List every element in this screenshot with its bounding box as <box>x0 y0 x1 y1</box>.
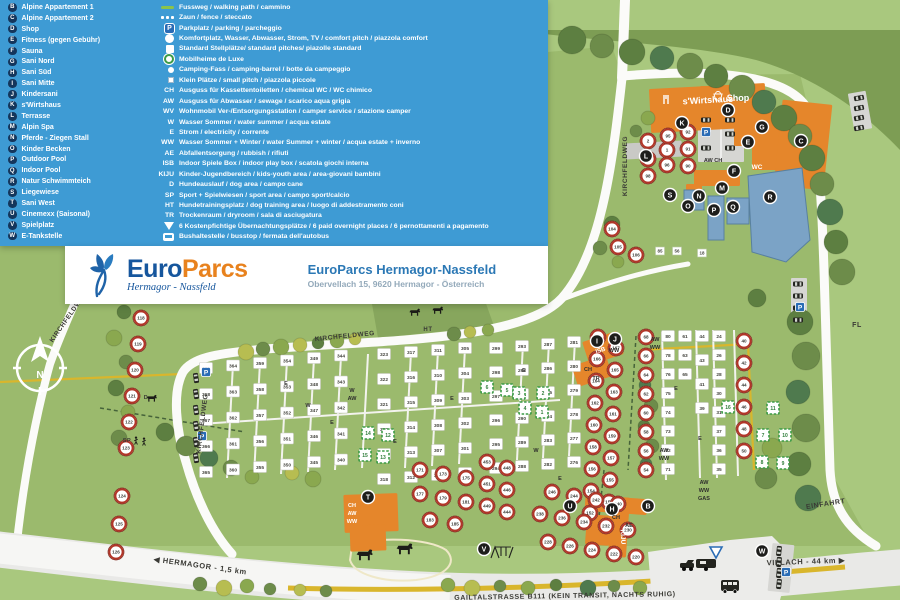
tree <box>156 423 174 441</box>
svg-text:299: 299 <box>492 346 500 352</box>
utility-label: W <box>305 403 311 409</box>
facility-label: Alpin Spa <box>22 124 54 131</box>
svg-text:122: 122 <box>125 420 133 425</box>
svg-text:359: 359 <box>256 361 264 367</box>
legend-symbol-row: KIJUKinder-Jugendbereich / kids-youth ar… <box>152 169 548 179</box>
svg-text:L: L <box>644 153 649 160</box>
legend-facility-row: QIndoor Pool <box>4 165 152 176</box>
svg-text:50: 50 <box>741 449 747 454</box>
circle-sm-icon <box>168 67 174 73</box>
facility-label: Liegewiese <box>22 189 59 196</box>
facility-label: Sani Süd <box>22 69 52 76</box>
facility-letter-badge: P <box>8 156 17 165</box>
svg-text:124: 124 <box>118 494 126 499</box>
legend-symbol-row: Komfortplatz, Wasser, Abwasser, Strom, T… <box>152 33 548 43</box>
tree <box>558 26 586 54</box>
fence-icon <box>161 16 174 19</box>
svg-text:159: 159 <box>608 434 616 439</box>
svg-text:S: S <box>668 192 673 199</box>
facility-label: Terrasse <box>22 113 51 120</box>
facility-letter-badge: M <box>8 123 17 132</box>
svg-text:280: 280 <box>570 364 578 370</box>
footpath-icon <box>161 6 174 9</box>
svg-text:92: 92 <box>685 130 691 135</box>
svg-text:5: 5 <box>506 388 509 394</box>
parked-car-icon <box>776 579 782 589</box>
tree <box>612 256 624 268</box>
svg-text:236: 236 <box>558 516 566 521</box>
svg-text:185: 185 <box>451 522 459 527</box>
utility-label: E <box>450 396 454 402</box>
svg-text:N: N <box>696 193 701 200</box>
svg-text:242: 242 <box>592 498 600 503</box>
svg-text:451: 451 <box>483 482 491 487</box>
building-sani-west <box>350 524 387 551</box>
tree <box>619 39 645 65</box>
tree <box>117 305 131 319</box>
svg-text:281: 281 <box>570 340 578 346</box>
tree <box>176 436 196 456</box>
legend-symbol-row: Fussweg / walking path / cammino <box>152 2 548 12</box>
svg-text:90: 90 <box>685 164 691 169</box>
legend-facility-row: OKinder Becken <box>4 144 152 155</box>
svg-text:126: 126 <box>112 550 120 555</box>
svg-text:76: 76 <box>665 372 671 378</box>
legend-facility-row: WE-Tankstelle <box>4 231 152 242</box>
site-address: Obervellach 15, 9620 Hermagor - Österrei… <box>308 279 497 289</box>
legend-facility-row: GSani Nord <box>4 56 152 67</box>
tree <box>786 380 810 404</box>
facility-letter-badge: H <box>8 69 17 78</box>
area-label: TR <box>592 376 599 382</box>
svg-text:448: 448 <box>503 466 511 471</box>
svg-text:30: 30 <box>716 391 722 397</box>
tree <box>792 342 820 370</box>
outdoor-pool <box>708 196 724 240</box>
road-label: KIRCHFELDWEG <box>622 136 629 196</box>
facility-letter-badge: B <box>8 3 17 12</box>
svg-text:K: K <box>679 120 684 127</box>
svg-text:290: 290 <box>518 416 526 422</box>
parked-car-icon <box>793 294 803 299</box>
svg-text:354: 354 <box>283 358 291 364</box>
symbol-label: Strom / electricity / corrente <box>179 129 269 136</box>
facility-letter-badge: K <box>8 101 17 110</box>
svg-text:44: 44 <box>741 383 747 388</box>
svg-text:308: 308 <box>434 423 442 429</box>
symbol-abbr: HT <box>152 202 174 209</box>
symbol-label: Parkplatz / parking / parcheggio <box>179 25 282 32</box>
svg-text:355: 355 <box>256 465 264 471</box>
facility-label: Natur Schwimmteich <box>22 178 91 185</box>
legend-symbol-row: Klein Plätze / small pitch / piazzola pi… <box>152 75 548 85</box>
svg-text:322: 322 <box>380 377 388 383</box>
legend-facility-row: Ks'Wirtshaus <box>4 100 152 111</box>
svg-text:360: 360 <box>229 467 237 473</box>
area-label: AE <box>625 523 633 529</box>
svg-text:64: 64 <box>643 373 649 378</box>
parked-car-icon <box>793 282 803 287</box>
tree <box>447 327 461 341</box>
symbol-label: Ausguss für Kassettentoiletten / chemica… <box>179 87 372 94</box>
building-label: WC <box>752 164 763 171</box>
legend-facility-row: JKindersani <box>4 89 152 100</box>
svg-text:315: 315 <box>407 400 415 406</box>
svg-text:B: B <box>645 503 650 510</box>
facility-letter-badge: L <box>8 112 17 121</box>
svg-text:16: 16 <box>725 405 731 411</box>
svg-text:342: 342 <box>337 405 345 411</box>
svg-text:283: 283 <box>544 438 552 444</box>
symbol-label: Wasser Sommer + Winter / water Summer + … <box>179 139 420 146</box>
svg-text:282: 282 <box>544 462 552 468</box>
svg-text:11: 11 <box>770 406 776 412</box>
tree <box>482 324 494 336</box>
facility-letter-badge: Q <box>8 167 17 176</box>
brand-subtitle: Hermagor - Nassfeld <box>127 283 248 294</box>
utility-label: AW <box>660 448 670 454</box>
legend-facility-row: HSani Süd <box>4 67 152 78</box>
facility-label: Indoor Pool <box>22 167 61 174</box>
legend-symbol-row: ISBIndoor Spiele Box / indoor play box /… <box>152 159 548 169</box>
svg-text:73: 73 <box>665 429 671 435</box>
symbol-label: Sport + Spielwiesen / sport area / campo… <box>179 192 350 199</box>
legend-symbol-row: PParkplatz / parking / parcheggio <box>152 23 548 33</box>
svg-text:317: 317 <box>407 350 415 356</box>
svg-text:2: 2 <box>647 139 650 144</box>
facility-letter-badge: O <box>8 145 17 154</box>
svg-text:75: 75 <box>665 391 671 397</box>
svg-text:106: 106 <box>632 253 640 258</box>
svg-text:311: 311 <box>434 348 442 354</box>
tree <box>824 230 848 254</box>
legend-facility-row: BAlpine Appartement 1 <box>4 2 152 13</box>
svg-text:345: 345 <box>310 460 318 466</box>
svg-text:39: 39 <box>699 406 705 412</box>
tree <box>264 583 276 595</box>
facility-label: Fitness (gegen Gebühr) <box>22 37 101 44</box>
svg-text:N: N <box>36 370 43 381</box>
symbol-label: Bushaltestelle / busstop / fermata dell'… <box>179 233 329 240</box>
svg-text:228: 228 <box>544 540 552 545</box>
logo-bar: EuroParcs Hermagor - Nassfeld EuroParcs … <box>65 246 548 304</box>
svg-text:63: 63 <box>682 353 688 359</box>
tree <box>550 579 562 591</box>
symbol-abbr: SP <box>152 192 174 199</box>
svg-text:293: 293 <box>518 344 526 350</box>
symbol-label: Trockenraum / dryroom / sala di asciugat… <box>179 212 322 219</box>
tree <box>752 90 776 114</box>
svg-text:14: 14 <box>365 431 371 437</box>
symbol-abbr: CH <box>152 87 174 94</box>
facility-label: Kinder Becken <box>22 146 71 153</box>
building-label: CH <box>348 503 356 509</box>
legend-symbol-row: DHundeauslauf / dog area / campo cane <box>152 179 548 189</box>
svg-text:V: V <box>482 546 487 553</box>
svg-text:356: 356 <box>256 439 264 445</box>
svg-text:42: 42 <box>741 361 747 366</box>
overnight-icon <box>164 222 174 230</box>
utility-label: E <box>698 436 702 442</box>
svg-text:28: 28 <box>716 372 722 378</box>
building-label: KIJU <box>619 529 627 544</box>
utility-label: AW <box>348 396 358 402</box>
legend-facility-row: MAlpin Spa <box>4 122 152 133</box>
svg-text:224: 224 <box>588 548 596 553</box>
road <box>622 0 625 78</box>
square-lg-icon <box>166 45 174 53</box>
area-label: AW CH <box>704 158 722 164</box>
svg-text:123: 123 <box>122 446 130 451</box>
facility-label: Spielplatz <box>22 222 55 229</box>
svg-text:362: 362 <box>229 415 237 421</box>
svg-text:18: 18 <box>699 251 705 256</box>
svg-text:179: 179 <box>439 496 447 501</box>
svg-text:24: 24 <box>716 334 722 340</box>
tree <box>240 579 254 593</box>
legend-panel: BAlpine Appartement 1CAlpine Appartement… <box>0 0 548 246</box>
svg-text:G: G <box>759 124 765 131</box>
svg-text:Q: Q <box>730 204 736 211</box>
svg-text:118: 118 <box>137 316 145 321</box>
road-label: HT <box>423 327 432 333</box>
tree <box>441 578 455 592</box>
road-label: D <box>144 395 149 401</box>
legend-symbol-row: WVWohnmobil Ver-/Entsorgungsstation / ca… <box>152 106 548 116</box>
tree <box>799 145 825 171</box>
symbol-abbr: D <box>152 181 174 188</box>
tree <box>650 46 674 70</box>
svg-text:35: 35 <box>716 467 722 473</box>
parked-car-icon <box>725 146 735 151</box>
svg-text:F: F <box>732 168 737 175</box>
tree <box>256 342 270 356</box>
svg-text:364: 364 <box>229 363 237 369</box>
svg-text:313: 313 <box>407 450 415 456</box>
svg-text:160: 160 <box>590 423 598 428</box>
utility-label: E <box>284 381 288 387</box>
utility-label: W <box>533 448 539 454</box>
facility-letter-badge: S <box>8 188 17 197</box>
svg-text:119: 119 <box>134 342 142 347</box>
svg-text:347: 347 <box>310 408 318 414</box>
svg-text:T: T <box>366 494 371 501</box>
building-label: AW <box>348 511 358 517</box>
svg-text:8: 8 <box>761 460 764 466</box>
square-sm-icon <box>168 77 174 83</box>
svg-text:P: P <box>712 207 717 214</box>
symbol-abbr: AE <box>152 150 174 157</box>
svg-text:289: 289 <box>518 440 526 446</box>
tree <box>593 241 607 255</box>
circle-ring-icon <box>164 54 174 64</box>
p-icon: P <box>165 24 174 33</box>
facility-letter-badge: V <box>8 221 17 230</box>
svg-text:W: W <box>759 548 766 555</box>
facility-letter-badge: T <box>8 199 17 208</box>
legend-facility-row: NPferde - Ziegen Stall <box>4 133 152 144</box>
symbol-abbr: KIJU <box>152 171 174 178</box>
legend-symbol-row: Bushaltestelle / busstop / fermata dell'… <box>152 232 548 242</box>
svg-text:279: 279 <box>570 388 578 394</box>
svg-text:352: 352 <box>283 410 291 416</box>
legend-facility-row: VSpielplatz <box>4 220 152 231</box>
parked-car-icon <box>701 118 711 123</box>
svg-text:96: 96 <box>664 163 670 168</box>
svg-text:91: 91 <box>685 147 691 152</box>
facility-letter-badge: C <box>8 14 17 23</box>
tree <box>608 580 620 592</box>
facility-letter-badge: J <box>8 90 17 99</box>
svg-text:303: 303 <box>461 396 469 402</box>
svg-text:310: 310 <box>434 373 442 379</box>
tree <box>677 53 703 79</box>
svg-text:60: 60 <box>643 411 649 416</box>
facility-letter-badge: I <box>8 79 17 88</box>
svg-text:350: 350 <box>283 462 291 468</box>
legend-facility-row: TSani West <box>4 198 152 209</box>
legend-symbol-row: CHAusguss für Kassettentoiletten / chemi… <box>152 86 548 96</box>
symbol-label: Hundeauslauf / dog area / campo cane <box>179 181 303 188</box>
utility-label: W <box>349 388 355 394</box>
svg-text:220: 220 <box>632 555 640 560</box>
legend-facility-row: EFitness (gegen Gebühr) <box>4 35 152 46</box>
symbol-label: Kinder-Jugendbereich / kids-youth area /… <box>179 171 381 178</box>
road-label: SP <box>123 438 132 444</box>
svg-text:276: 276 <box>570 460 578 466</box>
svg-text:2: 2 <box>542 391 545 397</box>
svg-text:222: 222 <box>610 552 618 557</box>
svg-text:56: 56 <box>674 249 680 254</box>
parked-car-icon <box>776 546 782 556</box>
utility-label: AW <box>651 337 661 343</box>
tree <box>320 585 332 597</box>
legend-facility-row: SLiegewiese <box>4 187 152 198</box>
legend-symbol-row: TRTrockenraum / dryroom / sala di asciug… <box>152 211 548 221</box>
svg-text:15: 15 <box>362 453 368 459</box>
svg-text:13: 13 <box>380 455 386 461</box>
svg-text:31: 31 <box>716 410 722 416</box>
facility-letter-badge: W <box>8 232 17 241</box>
europarcs-logo-icon <box>87 252 121 298</box>
svg-text:D: D <box>725 107 730 114</box>
facility-label: Pferde - Ziegen Stall <box>22 135 89 142</box>
building-label: WW <box>347 519 358 525</box>
svg-text:346: 346 <box>310 434 318 440</box>
utility-label: E <box>330 420 334 426</box>
svg-text:58: 58 <box>643 430 649 435</box>
symbol-label: 6 Kostenpfichtige Übernachtungsplätze / … <box>179 223 489 230</box>
svg-text:12: 12 <box>385 433 391 439</box>
tree <box>273 339 289 355</box>
symbol-abbr: AW <box>152 98 174 105</box>
symbol-label: Ausguss für Abwasser / sewage / scarico … <box>179 98 350 105</box>
svg-text:348: 348 <box>310 382 318 388</box>
tree <box>590 34 614 58</box>
svg-text:62: 62 <box>643 392 649 397</box>
svg-text:43: 43 <box>699 358 705 364</box>
svg-text:238: 238 <box>536 512 544 517</box>
svg-text:234: 234 <box>580 520 588 525</box>
svg-text:307: 307 <box>434 448 442 454</box>
building-label: Shop <box>727 93 750 103</box>
svg-text:343: 343 <box>337 379 345 385</box>
svg-text:121: 121 <box>128 394 136 399</box>
svg-text:68: 68 <box>643 335 649 340</box>
svg-text:318: 318 <box>380 477 388 483</box>
legend-symbol-row: WWasser Sommer / water summer / acqua es… <box>152 117 548 127</box>
pool-complex <box>748 168 810 262</box>
legend-facilities: BAlpine Appartement 1CAlpine Appartement… <box>4 2 152 246</box>
legend-symbol-row: AWAusguss für Abwasser / sewage / scaric… <box>152 96 548 106</box>
svg-text:54: 54 <box>643 468 649 473</box>
svg-text:85: 85 <box>657 249 663 254</box>
svg-text:7: 7 <box>762 433 765 439</box>
utility-label: E <box>558 476 562 482</box>
parked-car-icon <box>725 118 735 123</box>
svg-text:301: 301 <box>461 446 469 452</box>
facility-label: Outdoor Pool <box>22 156 67 163</box>
facility-label: Sani West <box>22 200 55 207</box>
svg-text:61: 61 <box>682 334 688 340</box>
bus-icon <box>163 233 174 241</box>
tree <box>294 584 306 596</box>
svg-text:158: 158 <box>589 445 597 450</box>
svg-text:U: U <box>567 503 572 510</box>
symbol-label: Klein Plätze / small pitch / piazzola pi… <box>179 77 316 84</box>
tree <box>106 330 122 346</box>
road-label: FL <box>852 322 862 329</box>
tree <box>792 414 820 442</box>
tree <box>641 111 655 125</box>
svg-text:66: 66 <box>643 354 649 359</box>
facility-label: s'Wirtshaus <box>22 102 61 109</box>
parked-car-icon <box>725 132 735 137</box>
svg-text:344: 344 <box>337 353 345 359</box>
campsite-map-screenshot: 3693683673663653643633623613603593583573… <box>0 0 900 600</box>
brand-parcs: Parcs <box>182 255 248 283</box>
svg-text:232: 232 <box>602 524 610 529</box>
facility-letter-badge: E <box>8 36 17 45</box>
svg-text:278: 278 <box>570 412 578 418</box>
legend-facility-row: RNatur Schwimmteich <box>4 176 152 187</box>
symbol-abbr: TR <box>152 212 174 219</box>
svg-text:78: 78 <box>665 353 671 359</box>
legend-symbol-row: WWWasser Sommer + Winter / water Summer … <box>152 138 548 148</box>
svg-text:165: 165 <box>611 368 619 373</box>
svg-text:41: 41 <box>699 382 705 388</box>
symbol-label: Zaun / fence / steccato <box>179 14 252 21</box>
svg-text:O: O <box>685 203 691 210</box>
svg-text:298: 298 <box>492 370 500 376</box>
svg-text:446: 446 <box>503 488 511 493</box>
svg-text:M: M <box>719 185 725 192</box>
facility-label: Cinemexx (Saisonal) <box>22 211 90 218</box>
svg-text:C: C <box>798 138 803 145</box>
svg-text:P: P <box>784 569 789 576</box>
facility-letter-badge: F <box>8 47 17 56</box>
svg-text:157: 157 <box>607 456 615 461</box>
facility-letter-badge: R <box>8 177 17 186</box>
svg-text:80: 80 <box>665 334 671 340</box>
tree <box>630 125 642 137</box>
legend-facility-row: CAlpine Appartement 2 <box>4 13 152 24</box>
utility-label: E <box>674 386 678 392</box>
svg-text:296: 296 <box>492 418 500 424</box>
facility-label: Kindersani <box>22 91 58 98</box>
brand-name: EuroParcs <box>127 257 248 282</box>
svg-text:175: 175 <box>462 476 470 481</box>
